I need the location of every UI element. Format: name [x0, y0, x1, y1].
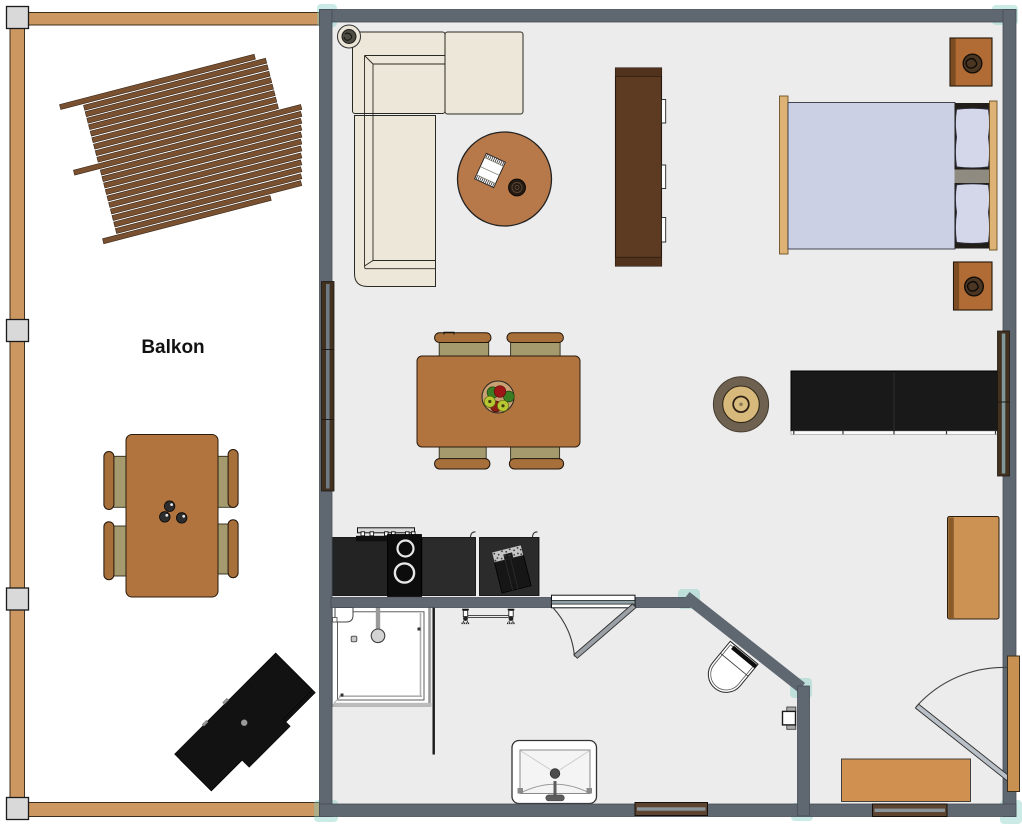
svg-text:Balkon: Balkon: [141, 337, 204, 358]
